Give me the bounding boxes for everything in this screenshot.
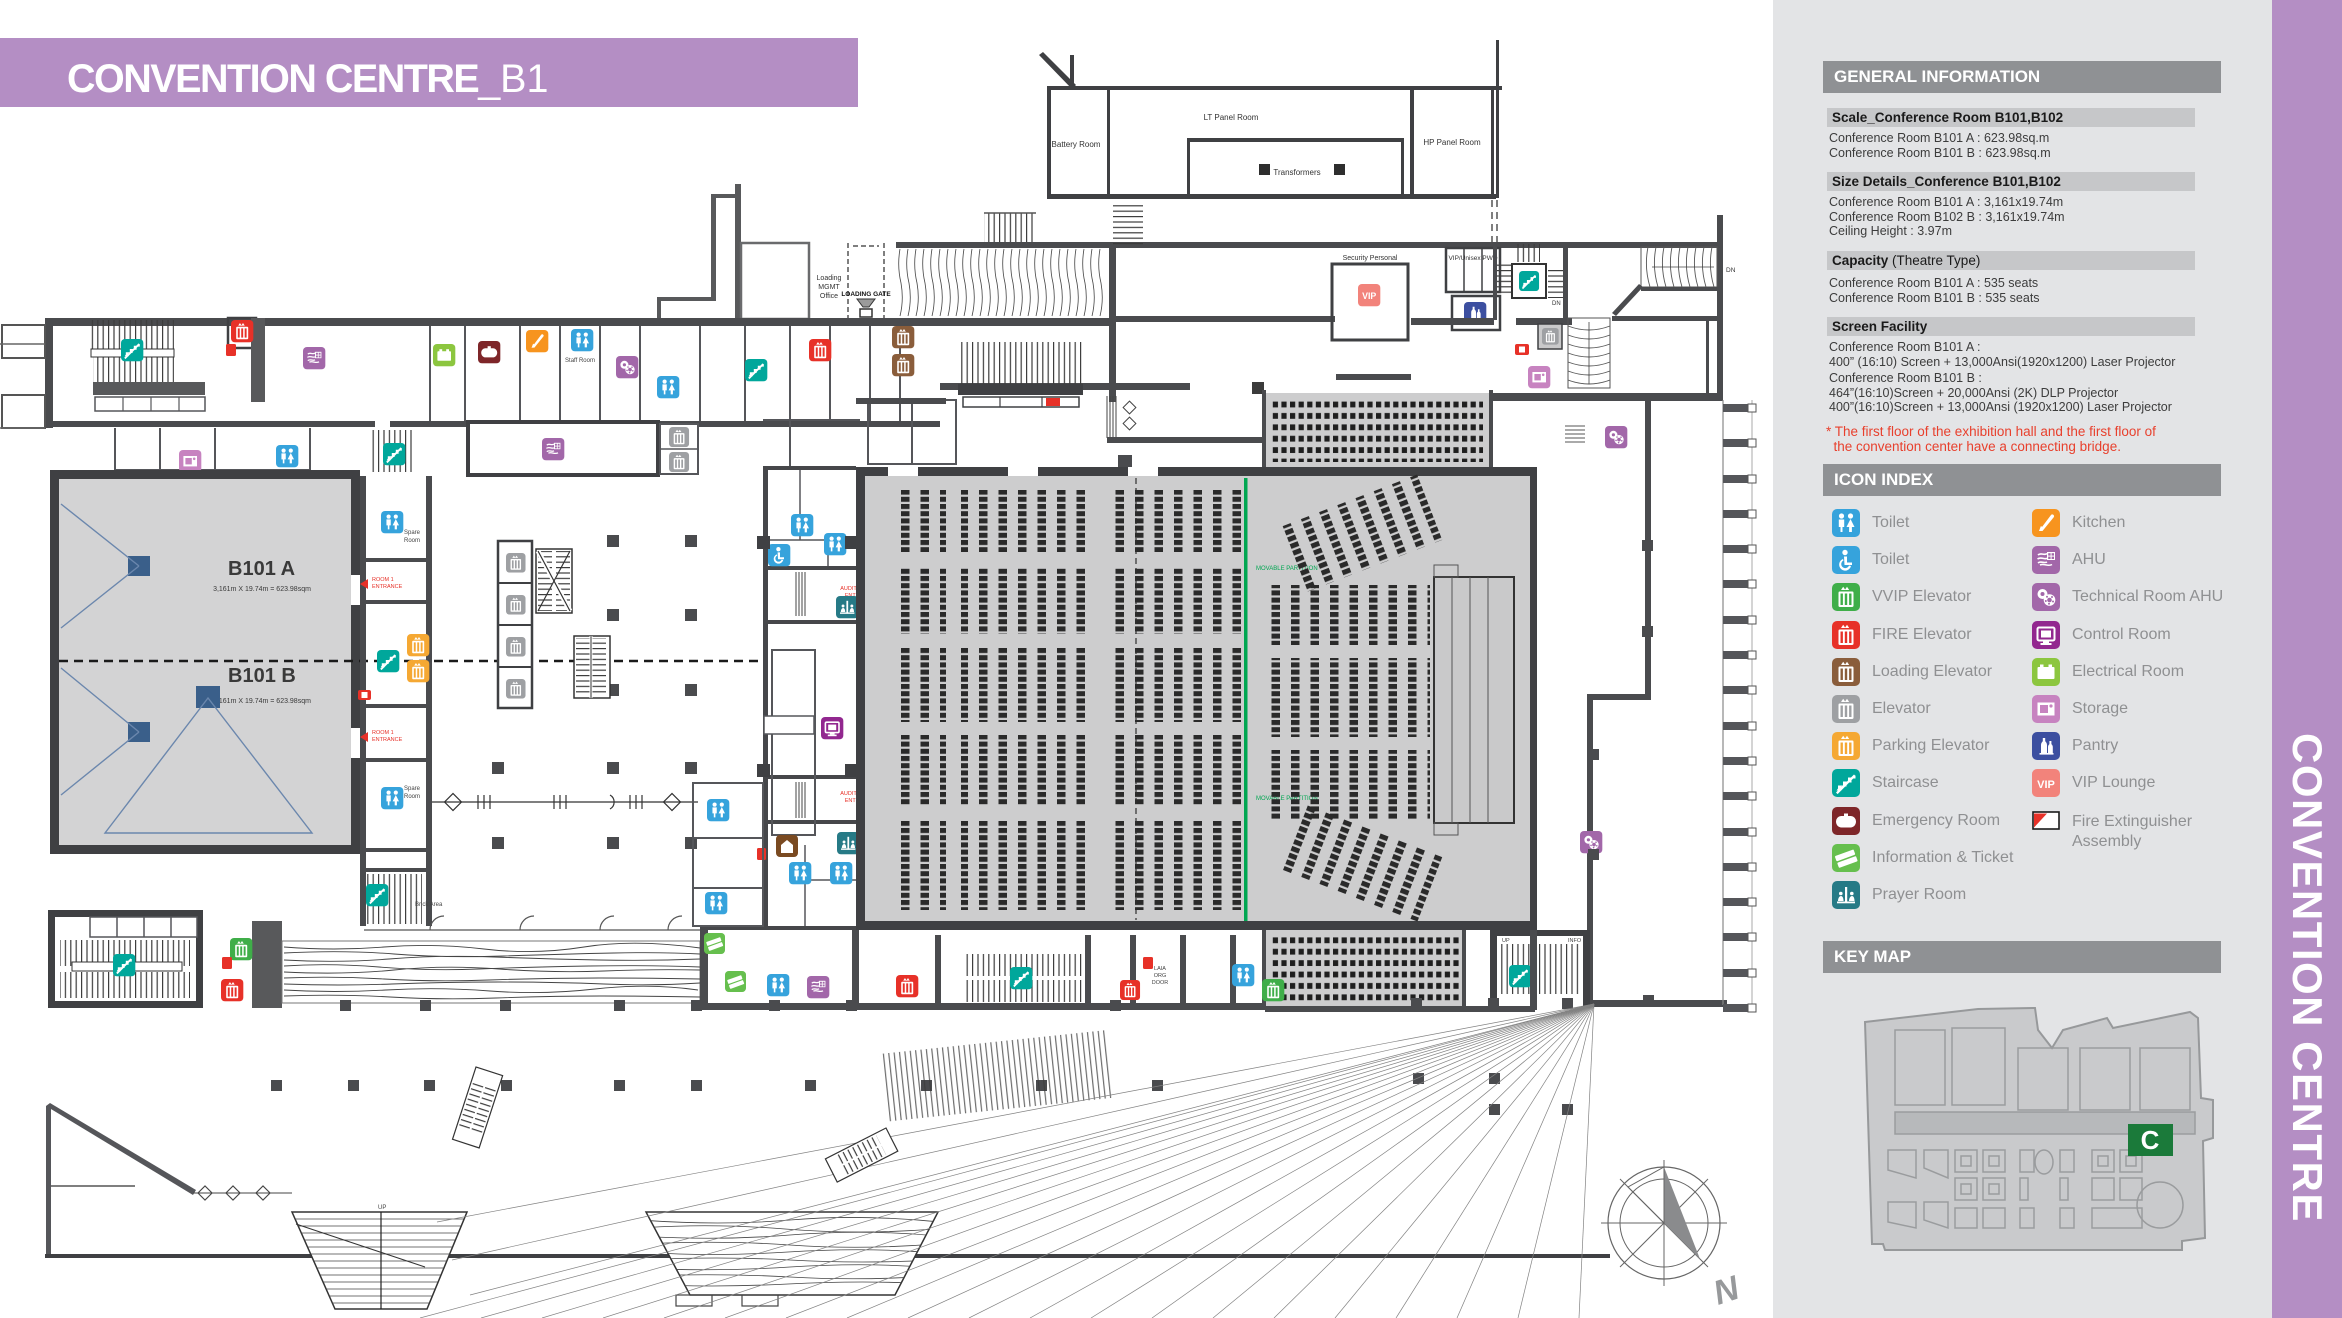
svg-text:HP Panel Room: HP Panel Room — [1423, 138, 1481, 147]
svg-text:Room: Room — [404, 538, 420, 544]
svg-text:B101 A: B101 A — [228, 558, 295, 580]
svg-text:ROOM 1: ROOM 1 — [372, 577, 394, 583]
svg-text:ROOM 1: ROOM 1 — [372, 730, 394, 736]
svg-text:N: N — [1709, 1268, 1745, 1312]
svg-text:3,161m X 19.74m = 623.98sqm: 3,161m X 19.74m = 623.98sqm — [213, 698, 311, 705]
svg-text:UP: UP — [378, 1205, 386, 1211]
svg-text:DN: DN — [1552, 301, 1561, 307]
svg-text:LOADING GATE: LOADING GATE — [841, 291, 891, 298]
svg-text:ENTRANCE: ENTRANCE — [372, 584, 403, 590]
svg-text:VIP/Unisex PWD: VIP/Unisex PWD — [1448, 255, 1497, 262]
svg-text:Spare: Spare — [404, 786, 421, 792]
svg-text:Transformers: Transformers — [1273, 168, 1320, 177]
svg-text:Staff Room: Staff Room — [565, 358, 595, 364]
svg-text:Room: Room — [404, 794, 420, 800]
svg-text:Security Personal: Security Personal — [1343, 255, 1398, 262]
svg-text:Battery Room: Battery Room — [1052, 140, 1101, 149]
svg-text:ENTRANCE: ENTRANCE — [372, 737, 403, 743]
svg-text:LT Panel Room: LT Panel Room — [1204, 113, 1259, 122]
svg-text:Brick Area: Brick Area — [415, 902, 443, 908]
svg-text:C: C — [2141, 1125, 2160, 1155]
svg-text:INFO: INFO — [1568, 938, 1582, 944]
svg-text:Office: Office — [820, 293, 838, 300]
svg-text:DOOR: DOOR — [1152, 980, 1169, 986]
svg-text:DN: DN — [1726, 267, 1736, 274]
svg-text:MGMT: MGMT — [818, 284, 840, 291]
svg-text:ORG: ORG — [1154, 973, 1167, 979]
svg-text:LAIA: LAIA — [1154, 966, 1166, 972]
svg-text:B101 B: B101 B — [228, 665, 296, 687]
svg-text:UP: UP — [1502, 938, 1510, 944]
svg-text:Spare: Spare — [404, 530, 421, 536]
svg-text:Loading: Loading — [817, 275, 842, 282]
svg-text:3,161m X 19.74m = 623.98sqm: 3,161m X 19.74m = 623.98sqm — [213, 586, 311, 593]
